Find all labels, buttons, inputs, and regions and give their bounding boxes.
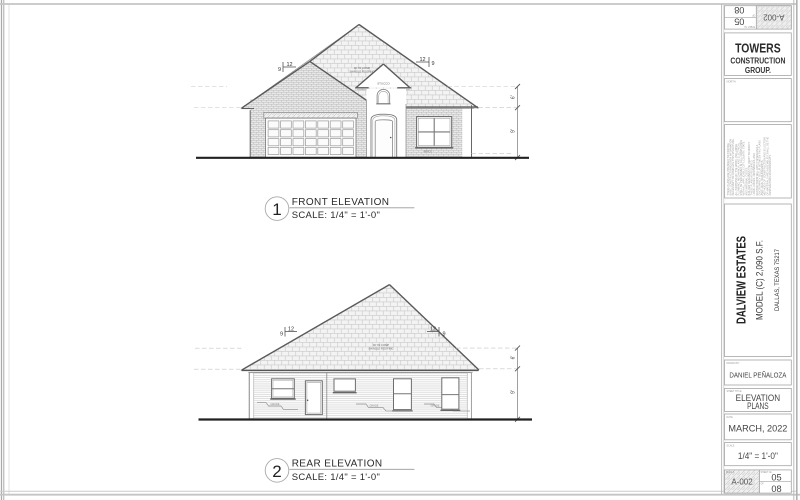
svg-text:PLANS: PLANS [747,401,769,411]
svg-text:12: 12 [430,327,436,333]
svg-text:SCALE: 1/4" = 1'-0": SCALE: 1/4" = 1'-0" [292,210,380,221]
svg-text:05: 05 [734,17,744,27]
svg-text:CONSTRUCTION: CONSTRUCTION [730,57,785,66]
svg-text:DALLAS, TEXAS 75217: DALLAS, TEXAS 75217 [774,249,781,311]
svg-text:6': 6' [511,356,517,360]
svg-text:REAR ELEVATION: REAR ELEVATION [292,458,383,469]
svg-text:NORTH: NORTH [727,80,736,84]
svg-text:A-002: A-002 [731,478,753,487]
svg-text:9: 9 [432,61,435,67]
svg-text:2: 2 [272,462,281,481]
svg-text:30 YR COMP: 30 YR COMP [354,66,370,70]
svg-text:6': 6' [511,95,517,99]
svg-text:MARCH, 2022: MARCH, 2022 [728,424,787,435]
svg-text:PLAN #: PLAN # [726,471,735,474]
svg-text:GRADE: GRADE [271,403,280,406]
svg-text:A-002: A-002 [763,12,785,21]
svg-text:BRICK: BRICK [424,149,432,153]
svg-text:SCALE: SCALE [727,444,735,447]
svg-text:9: 9 [278,67,281,73]
svg-text:DRAWN BY: DRAWN BY [727,362,740,365]
svg-text:DALVIEW ESTATES: DALVIEW ESTATES [735,236,749,324]
svg-text:DANIEL PEÑALOZA: DANIEL PEÑALOZA [729,371,787,380]
svg-text:1: 1 [272,200,281,219]
svg-text:SHINGLE ROOFING: SHINGLE ROOFING [368,346,393,350]
svg-text:05: 05 [771,473,781,483]
svg-text:DATE: DATE [727,416,734,419]
svg-text:12: 12 [419,57,425,63]
svg-text:9: 9 [443,332,446,338]
svg-text:FRONT ELEVATION: FRONT ELEVATION [292,197,390,208]
svg-text:12: 12 [286,62,292,68]
svg-text:08: 08 [771,484,781,494]
svg-text:CONTRACTORS RESPONSIBILITY.: CONTRACTORS RESPONSIBILITY. [769,154,772,195]
svg-text:MODEL (C) 2,090 S.F.: MODEL (C) 2,090 S.F. [755,240,765,320]
svg-text:GRADE: GRADE [370,405,379,408]
svg-text:STUCCO: STUCCO [377,82,390,86]
svg-text:12: 12 [288,327,294,333]
svg-text:SCALE: 1/4" = 1'-0": SCALE: 1/4" = 1'-0" [292,472,380,483]
svg-text:9: 9 [280,332,283,338]
svg-text:9': 9' [511,129,517,133]
svg-text:30 YR COMP: 30 YR COMP [373,343,389,347]
svg-text:9': 9' [511,390,517,394]
svg-text:TOWERS: TOWERS [735,41,781,56]
svg-text:1/4" = 1'-0": 1/4" = 1'-0" [738,451,778,462]
svg-text:08: 08 [734,5,744,15]
svg-text:SHINGLE ROOFING: SHINGLE ROOFING [349,69,374,73]
svg-text:GRADE: GRADE [431,405,440,408]
svg-text:GROUP.: GROUP. [745,66,771,75]
